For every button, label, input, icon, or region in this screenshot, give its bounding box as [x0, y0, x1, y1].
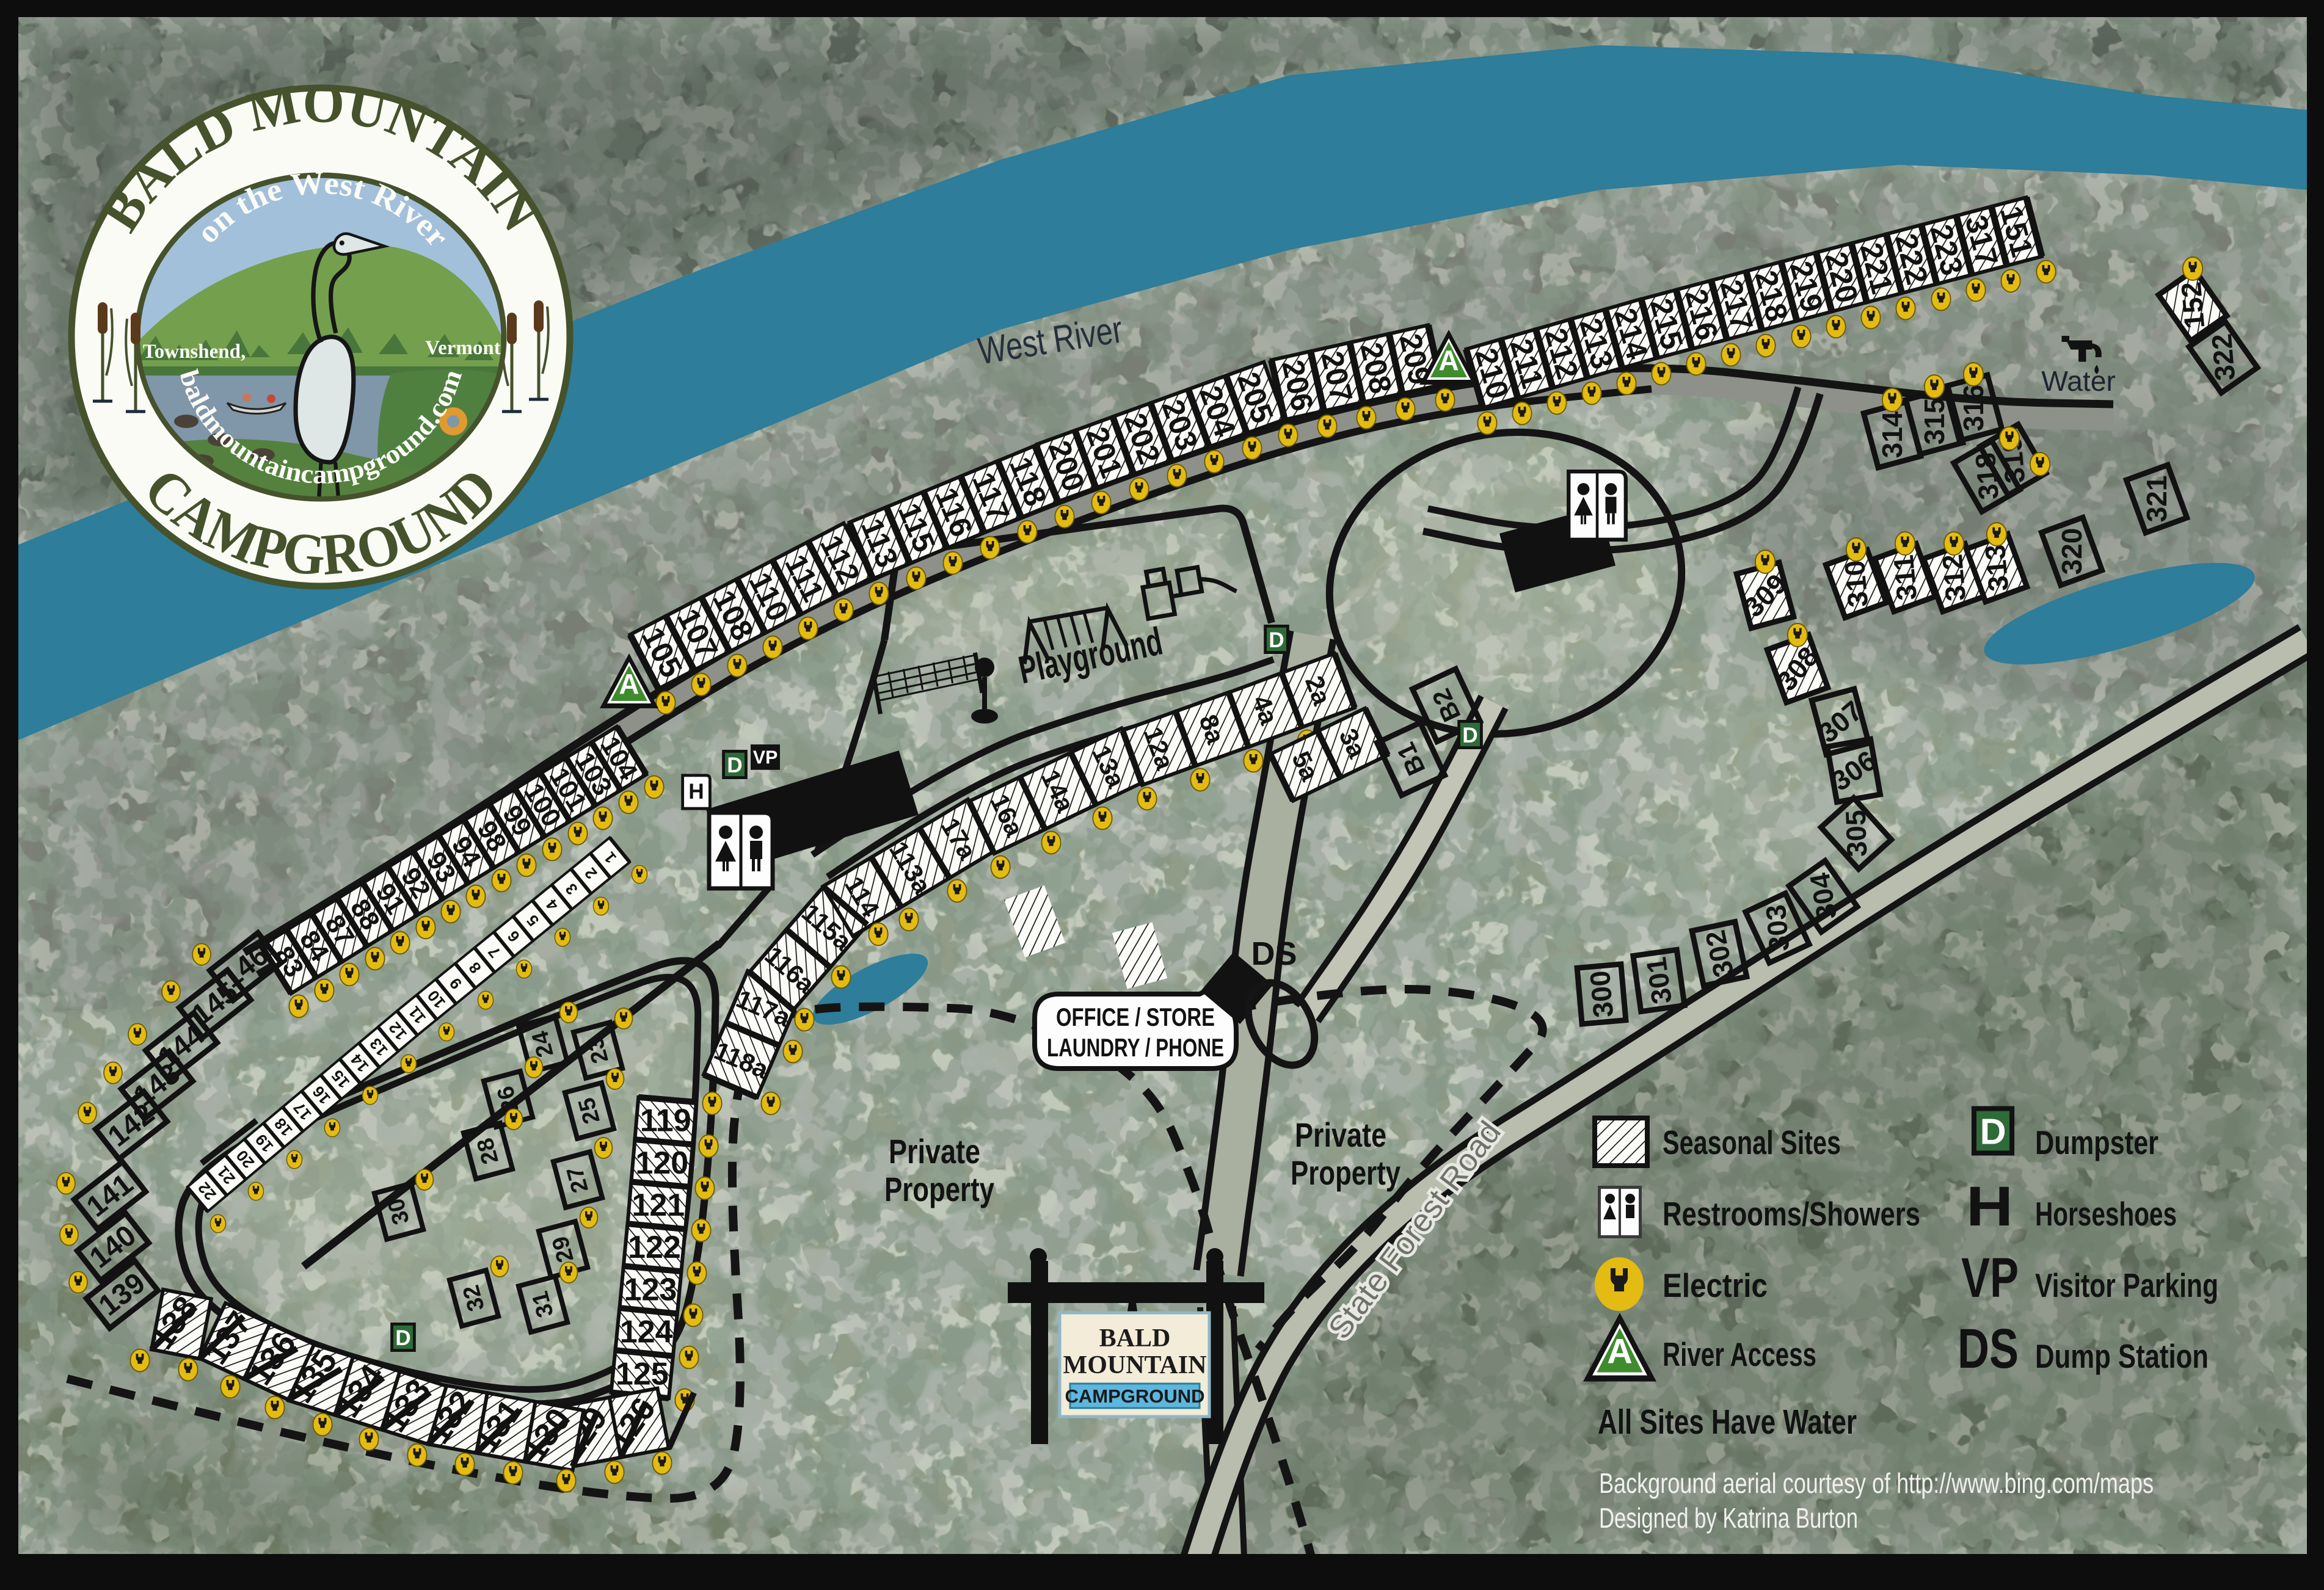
svg-text:Water: Water [2041, 365, 2116, 397]
svg-text:D: D [395, 1326, 410, 1350]
svg-text:D: D [727, 753, 742, 777]
svg-text:A: A [619, 668, 639, 700]
svg-text:Private: Private [1295, 1116, 1386, 1154]
svg-text:Visitor Parking: Visitor Parking [2035, 1266, 2218, 1304]
svg-text:311: 311 [1887, 554, 1923, 601]
svg-text:CAMPGROUND: CAMPGROUND [1065, 1385, 1204, 1407]
svg-text:152: 152 [2175, 281, 2210, 330]
svg-text:Dumpster: Dumpster [2035, 1124, 2158, 1161]
svg-text:D: D [1980, 1111, 2006, 1152]
svg-text:A: A [1607, 1332, 1633, 1371]
svg-text:300: 300 [1584, 970, 1619, 1019]
svg-text:River Access: River Access [1663, 1335, 1816, 1373]
svg-text:D: D [1269, 628, 1284, 652]
svg-text:H: H [688, 780, 704, 804]
svg-text:Townshend,: Townshend, [143, 341, 246, 363]
svg-text:314: 314 [1876, 411, 1908, 458]
svg-text:303: 303 [1760, 904, 1795, 953]
svg-text:301: 301 [1640, 955, 1678, 1006]
svg-text:Electric: Electric [1663, 1266, 1768, 1304]
svg-text:312: 312 [1936, 553, 1972, 603]
svg-text:Private: Private [889, 1132, 980, 1171]
svg-text:315: 315 [1918, 398, 1950, 445]
svg-text:Seasonal Sites: Seasonal Sites [1663, 1124, 1841, 1161]
svg-text:Designed by Katrina Burton: Designed by Katrina Burton [1599, 1502, 1858, 1534]
svg-text:A: A [1438, 344, 1459, 376]
svg-text:LAUNDRY / PHONE: LAUNDRY / PHONE [1047, 1033, 1224, 1062]
svg-text:121: 121 [632, 1188, 685, 1223]
svg-text:Restrooms/Showers: Restrooms/Showers [1663, 1195, 1920, 1233]
svg-text:DS: DS [1251, 935, 1297, 972]
svg-text:310: 310 [1838, 559, 1874, 609]
svg-text:124: 124 [620, 1314, 673, 1349]
svg-text:VP: VP [753, 747, 778, 768]
svg-text:DS: DS [1958, 1318, 2019, 1380]
svg-text:H: H [1966, 1175, 2013, 1238]
svg-text:316: 316 [1958, 385, 1989, 432]
svg-text:119: 119 [640, 1103, 691, 1139]
svg-text:Property: Property [884, 1170, 994, 1208]
svg-text:122: 122 [628, 1230, 681, 1265]
svg-text:313: 313 [1979, 543, 2014, 593]
svg-text:321: 321 [2141, 476, 2173, 523]
svg-text:322: 322 [2206, 333, 2241, 382]
svg-text:BALD: BALD [1099, 1324, 1171, 1352]
svg-text:Dump Station: Dump Station [2035, 1337, 2209, 1375]
svg-text:320: 320 [2056, 528, 2088, 575]
svg-text:123: 123 [624, 1272, 677, 1307]
svg-text:Horseshoes: Horseshoes [2035, 1195, 2177, 1233]
svg-text:Property: Property [1291, 1153, 1401, 1192]
svg-text:D: D [1462, 724, 1477, 747]
svg-text:MOUNTAIN: MOUNTAIN [1063, 1351, 1207, 1379]
svg-text:VP: VP [1961, 1247, 2019, 1309]
svg-text:125: 125 [616, 1357, 669, 1392]
svg-text:All Sites Have Water: All Sites Have Water [1598, 1403, 1857, 1442]
svg-text:Vermont: Vermont [425, 337, 500, 359]
svg-text:120: 120 [635, 1145, 688, 1181]
svg-text:Background aerial courtesy of: Background aerial courtesy of http://www… [1599, 1467, 2154, 1499]
svg-text:OFFICE / STORE: OFFICE / STORE [1056, 1003, 1215, 1031]
svg-text:305: 305 [1840, 810, 1873, 858]
